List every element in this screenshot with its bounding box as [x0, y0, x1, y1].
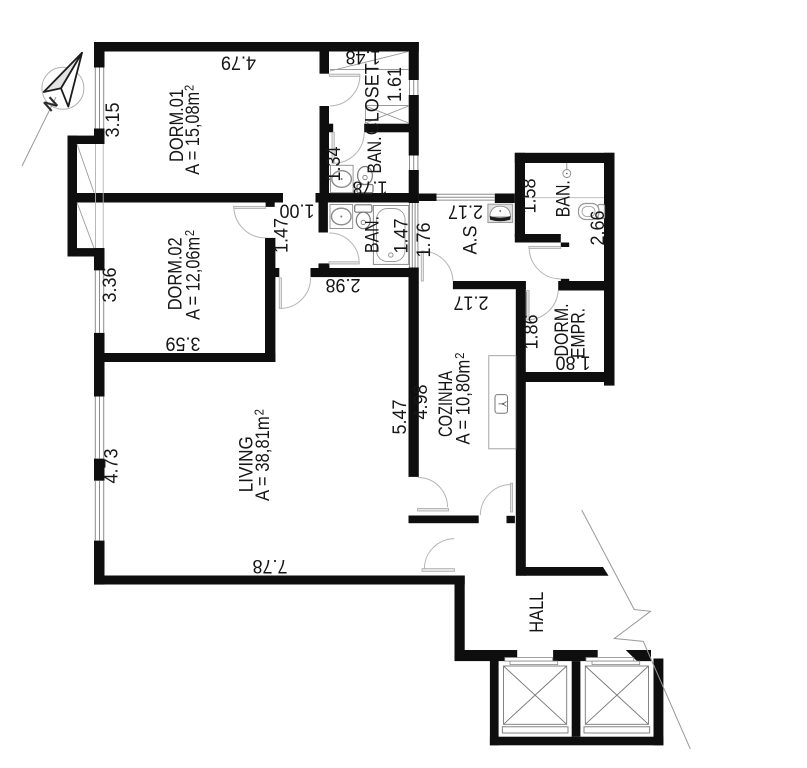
svg-text:A = 15,08m2: A = 15,08m2 [181, 85, 204, 175]
svg-text:A = 38,81m2: A = 38,81m2 [251, 409, 274, 501]
svg-text:3.15: 3.15 [103, 103, 124, 138]
svg-text:7.78: 7.78 [253, 555, 288, 576]
svg-text:CLOSET: CLOSET [363, 63, 384, 135]
svg-text:1.47: 1.47 [272, 218, 293, 253]
svg-text:2.98: 2.98 [326, 274, 361, 295]
svg-text:1.47: 1.47 [392, 219, 413, 254]
svg-text:3.59: 3.59 [166, 333, 201, 354]
svg-text:4.98: 4.98 [411, 385, 432, 420]
svg-text:A = 10,80m2: A = 10,80m2 [452, 353, 475, 445]
svg-text:1.80: 1.80 [556, 352, 591, 373]
svg-text:1.34: 1.34 [324, 146, 345, 181]
svg-text:1.61: 1.61 [385, 67, 406, 102]
svg-text:2.17: 2.17 [448, 201, 483, 222]
svg-text:1.58: 1.58 [520, 179, 541, 214]
svg-text:2.66: 2.66 [588, 211, 609, 246]
svg-text:1.00: 1.00 [280, 200, 315, 221]
svg-text:1.86: 1.86 [522, 315, 543, 350]
svg-text:BAN.: BAN. [363, 216, 384, 253]
svg-text:4.79: 4.79 [221, 52, 256, 73]
svg-text:EMPR.: EMPR. [568, 308, 589, 358]
svg-text:1.76: 1.76 [414, 223, 435, 258]
svg-text:4.73: 4.73 [102, 449, 123, 484]
svg-text:A = 12,06m2: A = 12,06m2 [181, 230, 204, 320]
svg-text:1.78: 1.78 [353, 177, 388, 198]
svg-text:1.48: 1.48 [346, 46, 381, 67]
svg-text:HALL: HALL [527, 592, 548, 633]
svg-text:BAN.: BAN. [365, 137, 386, 174]
svg-text:2.17: 2.17 [454, 292, 489, 313]
svg-text:BAN.: BAN. [554, 180, 575, 217]
svg-text:A.S: A.S [461, 226, 482, 255]
svg-text:5.47: 5.47 [390, 400, 411, 435]
svg-text:3.36: 3.36 [100, 268, 121, 303]
